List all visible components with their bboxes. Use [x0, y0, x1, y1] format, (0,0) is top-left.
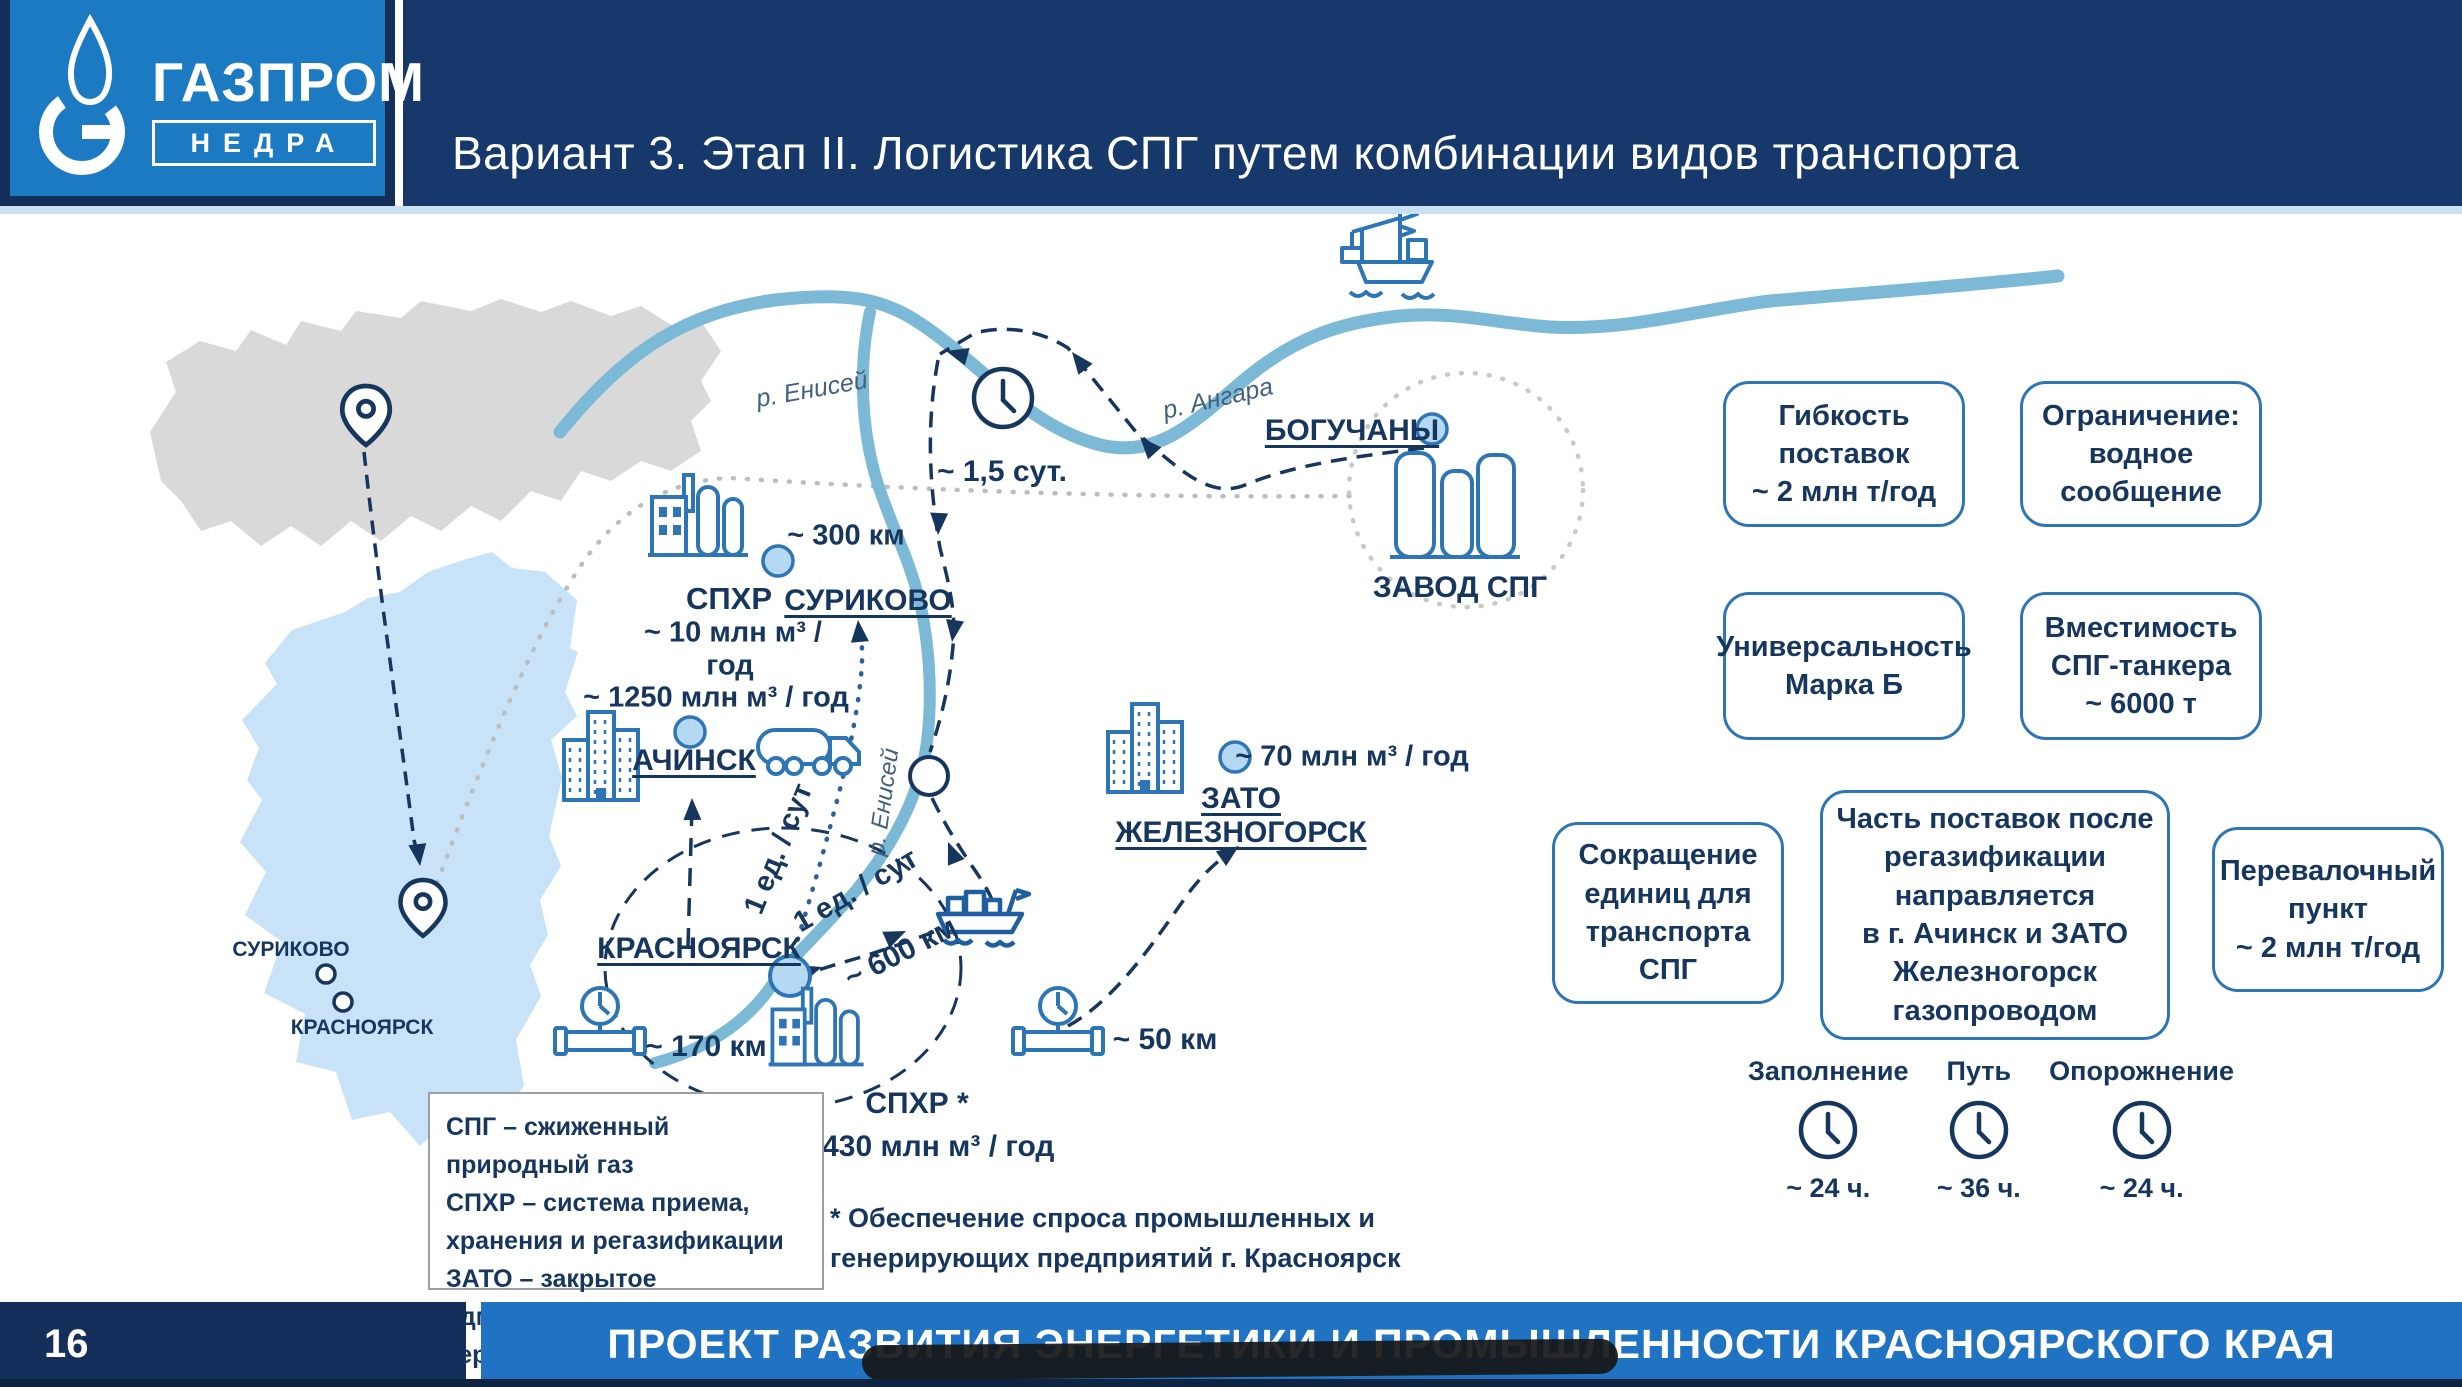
clock-icon-emptying	[2109, 1097, 2175, 1163]
label-zato-line1: ЗАТО	[1201, 782, 1281, 816]
footnote: * Обеспечение спроса промышленных и гене…	[830, 1198, 1401, 1278]
label-krasnoyarsk: КРАСНОЯРСК	[597, 932, 801, 966]
timing-filling-value: ~ 24 ч.	[1786, 1173, 1870, 1204]
header-separator	[395, 0, 403, 206]
label-zato-cap: ~ 70 млн м³ / год	[1235, 741, 1468, 774]
timing-route-label: Путь	[1947, 1056, 2012, 1087]
label-dist-50: ~ 50 км	[1113, 1023, 1218, 1057]
label-zato-line2: ЖЕЛЕЗНОГОРСК	[1115, 816, 1366, 850]
zato-city-icon	[1108, 704, 1182, 792]
slide-title: Вариант 3. Этап II. Логистика СПГ путем …	[452, 126, 2019, 180]
label-dist-300: ~ 300 км	[787, 520, 904, 553]
gazprom-logo: ГАЗПРОМ НЕДРА	[10, 0, 385, 196]
timing-route-value: ~ 36 ч.	[1937, 1173, 2021, 1204]
timing-emptying: Опорожнение ~ 24 ч.	[2049, 1056, 2234, 1204]
label-achinsk: АЧИНСК	[632, 744, 756, 778]
clock-icon-route	[1946, 1097, 2012, 1163]
transit-time-label: ~ 1,5 сут.	[937, 455, 1067, 489]
infobox-transshipment: Перевалочный пункт ~ 2 млн т/год	[2212, 827, 2444, 992]
route-achinsk-dashed	[688, 806, 692, 946]
infobox-regasification: Часть поставок после регазификации напра…	[1820, 790, 2170, 1040]
valve-east-icon	[1013, 988, 1103, 1054]
river-transfer-node	[910, 757, 948, 795]
label-spxr-north-cap2: год	[706, 650, 753, 683]
clock-icon-filling	[1795, 1097, 1861, 1163]
infobox-flexibility: Гибкость поставок ~ 2 млн т/год	[1723, 381, 1965, 527]
lng-plant-icon	[1390, 453, 1520, 557]
timing-row: Заполнение ~ 24 ч. Путь ~ 36 ч. Опорожне…	[1748, 1056, 2234, 1204]
label-boguchany: БОГУЧАНЫ	[1265, 414, 1439, 448]
pipeline-zato-dashed	[1068, 851, 1232, 1026]
label-achinsk-cap: ~ 1250 млн м³ / год	[583, 682, 849, 715]
timing-emptying-label: Опорожнение	[2049, 1056, 2234, 1087]
label-lng-plant: ЗАВОД СПГ	[1373, 571, 1547, 605]
brand-word-gazprom: ГАЗПРОМ	[152, 50, 425, 114]
brand-word-nedra: НЕДРА	[152, 120, 376, 166]
region-shape	[240, 552, 578, 1146]
minimap-label-krasnoyarsk: КРАСНОЯРСК	[291, 1016, 434, 1040]
valve-west-icon	[555, 988, 645, 1054]
footnote-line: генерирующих предприятий г. Красноярск	[830, 1238, 1401, 1278]
gazprom-flame-icon	[24, 14, 154, 184]
legend-box: СПГ – сжиженный природный газ СПХР – сис…	[428, 1092, 824, 1290]
legend-line: СПГ – сжиженный природный газ	[446, 1108, 806, 1184]
slide: р. Енисей р. Ангара р. Енисей ~ 1,5 сут.…	[0, 0, 2462, 1387]
achinsk-city-icon	[564, 712, 638, 800]
spxr-south-plant-icon	[769, 989, 864, 1065]
label-spxr-north-cap1: ~ 10 млн м³ /	[644, 617, 822, 650]
minimap-krasnoyarsk-dot	[334, 993, 352, 1011]
timing-emptying-value: ~ 24 ч.	[2100, 1173, 2184, 1204]
river-port-icon	[1342, 208, 1434, 298]
infobox-universality: Универсальность Марка Б	[1723, 592, 1965, 740]
infobox-tanker-capacity: Вместимость СПГ-танкера ~ 6000 т	[2020, 592, 2262, 740]
footer-bottom-edge	[0, 1379, 2462, 1387]
lng-truck-icon	[758, 730, 859, 774]
minimap-label-surikovo: СУРИКОВО	[232, 938, 349, 962]
transit-clock-icon	[974, 369, 1032, 427]
minimap-surikovo-dot	[317, 965, 335, 983]
label-surikovo: СУРИКОВО	[784, 584, 951, 618]
legend-line: СПХР – система приема,	[446, 1184, 806, 1222]
legend-line: хранения и регазификации	[446, 1222, 806, 1260]
spxr-north-plant-icon	[648, 475, 748, 555]
infobox-unit-reduction: Сокращение единиц для транспорта СПГ	[1552, 822, 1784, 1004]
label-spxr-south: СПХР *	[865, 1087, 968, 1121]
infobox-limitation: Ограничение: водное сообщение	[2020, 381, 2262, 527]
timing-filling-label: Заполнение	[1748, 1056, 1908, 1087]
timing-filling: Заполнение ~ 24 ч.	[1748, 1056, 1908, 1204]
label-spxr-north: СПХР	[686, 581, 772, 617]
russia-map-shape	[150, 299, 721, 546]
label-dist-170: ~ 170 км	[645, 1030, 766, 1064]
header-divider	[0, 206, 2462, 214]
ink-smudge-artifact	[862, 1339, 1618, 1381]
timing-route: Путь ~ 36 ч.	[1937, 1056, 2021, 1204]
page-number: 16	[0, 1302, 466, 1387]
achinsk-marker	[675, 717, 705, 747]
footnote-line: * Обеспечение спроса промышленных и	[830, 1198, 1401, 1238]
